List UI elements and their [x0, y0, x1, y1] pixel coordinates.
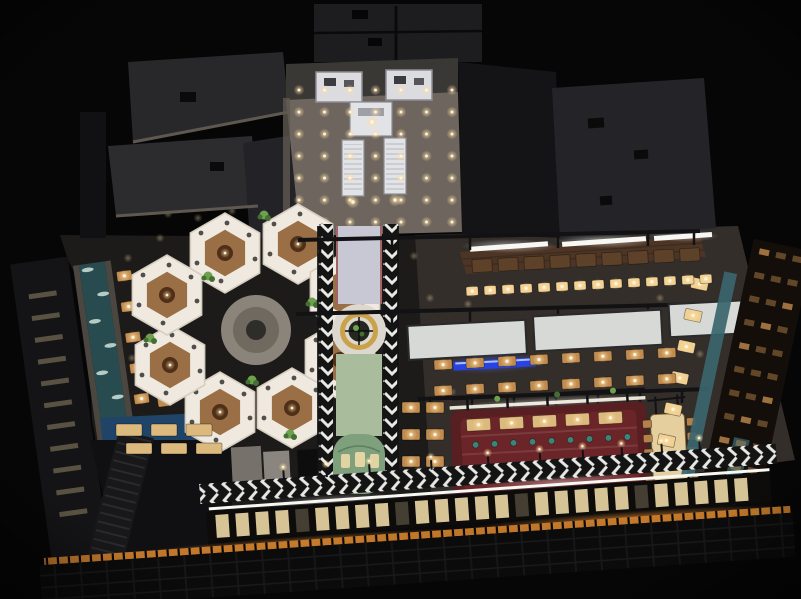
floorplan-render [0, 0, 801, 599]
vignette [0, 0, 801, 599]
restaurant-render-stage [0, 0, 801, 599]
